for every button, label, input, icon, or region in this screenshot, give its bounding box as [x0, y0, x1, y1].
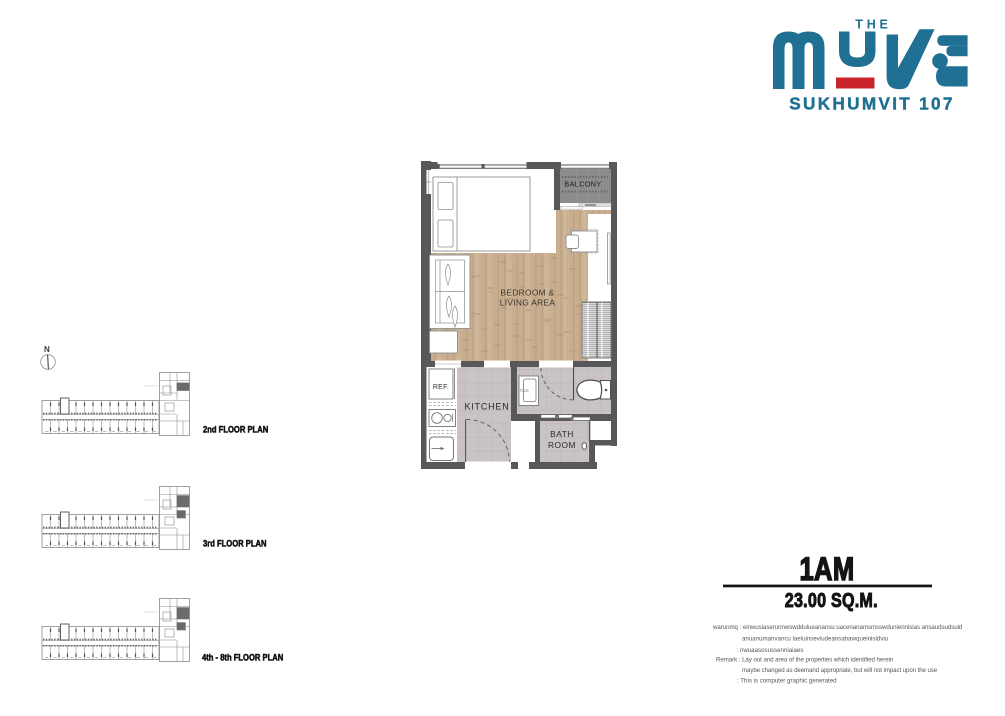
svg-text:THE: THE [855, 18, 891, 32]
svg-text:BALCONY: BALCONY [564, 180, 601, 189]
svg-text:BEDROOM &: BEDROOM & [501, 288, 555, 298]
svg-text:N: N [44, 345, 50, 354]
svg-text:Remark : Lay out and area of: Remark : Lay out and area of the propert… [716, 657, 894, 664]
svg-text:2nd FLOOR PLAN: 2nd FLOOR PLAN [203, 424, 268, 435]
svg-text:ROOM: ROOM [548, 440, 576, 450]
svg-text:23.00 SQ.M.: 23.00 SQ.M. [785, 588, 878, 611]
svg-text:4th - 8th FLOOR PLAN: 4th - 8th FLOOR PLAN [202, 652, 283, 663]
svg-text:3rd FLOOR PLAN: 3rd FLOOR PLAN [203, 538, 267, 549]
svg-text:SUKHUMVIT 107: SUKHUMVIT 107 [789, 94, 955, 114]
svg-text:CB: CB [524, 389, 529, 393]
svg-text:anuanumanvancu laeluinseviudea: anuanumanvancu laeluinseviudeansahawquei… [742, 636, 888, 643]
svg-text:1AM: 1AM [800, 552, 855, 588]
svg-text:: nwuaasosussenniaiaes: : nwuaasosussenniaiaes [737, 647, 804, 654]
svg-text:: This is computer graphic ge: : This is computer graphic generated [737, 678, 837, 685]
svg-text:BATH: BATH [550, 429, 574, 439]
svg-text:maybe changed as deemand appro: maybe changed as deemand appropriate, bu… [742, 667, 938, 674]
svg-text:KITCHEN: KITCHEN [464, 402, 509, 412]
svg-text:warunmq : einwusiaserunnwswddu: warunmq : einwusiaserunnwswddulueanansu … [712, 624, 963, 631]
svg-text:LIVING AREA: LIVING AREA [500, 298, 556, 308]
svg-text:REF.: REF. [433, 384, 449, 391]
